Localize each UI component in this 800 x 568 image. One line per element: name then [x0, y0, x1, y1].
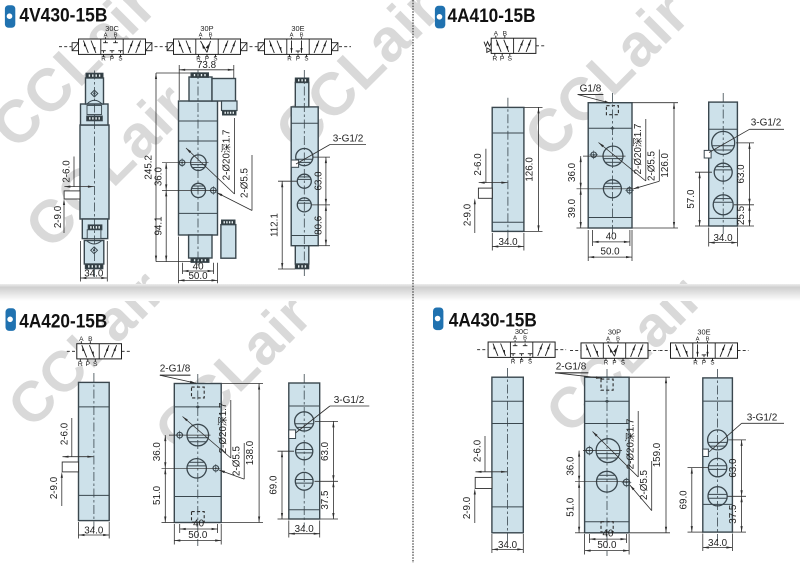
svg-text:80.6: 80.6 [313, 215, 324, 235]
svg-text:S: S [304, 56, 308, 63]
svg-text:2-G1/8: 2-G1/8 [556, 362, 587, 373]
svg-text:34.0: 34.0 [84, 269, 104, 280]
svg-text:34.0: 34.0 [713, 233, 733, 244]
svg-text:2-Ø5.5: 2-Ø5.5 [647, 150, 658, 181]
svg-text:126.0: 126.0 [660, 152, 671, 177]
svg-text:50.0: 50.0 [188, 530, 208, 541]
svg-text:34.0: 34.0 [295, 524, 315, 535]
svg-text:P: P [110, 56, 114, 63]
svg-text:3-G1/2: 3-G1/2 [333, 134, 364, 145]
svg-text:P: P [612, 359, 616, 366]
svg-text:36.0: 36.0 [567, 162, 578, 182]
svg-text:2-9.0: 2-9.0 [462, 203, 473, 226]
svg-text:2-G1/8: 2-G1/8 [160, 364, 191, 375]
svg-text:36.0: 36.0 [154, 167, 165, 187]
svg-text:R: R [287, 56, 292, 63]
svg-text:R: R [511, 359, 516, 366]
svg-text:34.0: 34.0 [498, 540, 518, 551]
svg-text:138.0: 138.0 [245, 440, 256, 465]
svg-text:2-6.0: 2-6.0 [62, 160, 73, 183]
svg-text:3-G1/2: 3-G1/2 [334, 395, 365, 406]
svg-text:39.0: 39.0 [567, 198, 578, 218]
svg-text:R: R [604, 359, 609, 366]
svg-text:2-Ø5.5: 2-Ø5.5 [240, 167, 251, 198]
svg-text:57.0: 57.0 [686, 189, 697, 209]
svg-text:2-9.0: 2-9.0 [49, 476, 60, 499]
svg-text:159.0: 159.0 [652, 442, 663, 467]
svg-text:63.0: 63.0 [313, 171, 324, 191]
svg-text:S: S [93, 361, 98, 368]
svg-text:P: P [296, 56, 300, 63]
svg-text:51.0: 51.0 [566, 497, 577, 517]
svg-text:2-Ø5.5: 2-Ø5.5 [639, 469, 650, 500]
svg-text:34.0: 34.0 [708, 538, 728, 549]
svg-text:4V430-15B: 4V430-15B [19, 5, 107, 27]
svg-text:3-G1/2: 3-G1/2 [747, 413, 778, 424]
svg-text:2-9.0: 2-9.0 [53, 205, 64, 228]
svg-text:2-9.0: 2-9.0 [462, 496, 473, 519]
svg-text:2-Ø20深1.7: 2-Ø20深1.7 [632, 124, 644, 175]
svg-text:3-G1/2: 3-G1/2 [751, 118, 782, 129]
svg-text:63.0: 63.0 [320, 441, 331, 461]
svg-text:36.0: 36.0 [566, 456, 577, 476]
svg-text:P: P [520, 359, 524, 366]
svg-text:36.0: 36.0 [152, 442, 163, 462]
svg-text:73.8: 73.8 [197, 60, 217, 71]
svg-text:S: S [508, 55, 513, 62]
svg-text:S: S [528, 359, 532, 366]
svg-text:63.0: 63.0 [736, 164, 747, 184]
svg-text:R: R [101, 56, 106, 63]
svg-text:2-Ø20深1.7: 2-Ø20深1.7 [624, 419, 636, 470]
svg-text:2-Ø20深1.7: 2-Ø20深1.7 [221, 130, 233, 181]
svg-text:4A420-15B: 4A420-15B [19, 311, 107, 333]
svg-text:37.5: 37.5 [320, 490, 331, 510]
svg-text:50.0: 50.0 [601, 247, 621, 258]
svg-text:40: 40 [606, 231, 617, 242]
svg-text:2-6.0: 2-6.0 [472, 439, 483, 462]
svg-text:34.0: 34.0 [84, 526, 104, 537]
svg-text:S: S [621, 359, 625, 366]
svg-text:94.1: 94.1 [154, 216, 165, 235]
svg-text:69.0: 69.0 [269, 475, 280, 495]
svg-text:126.0: 126.0 [525, 157, 536, 182]
svg-text:2-Ø20深1.7: 2-Ø20深1.7 [217, 403, 229, 454]
svg-text:2-6.0: 2-6.0 [59, 422, 70, 445]
svg-text:G1/8: G1/8 [580, 84, 602, 95]
svg-text:40: 40 [193, 519, 204, 530]
svg-text:40: 40 [603, 529, 614, 540]
svg-text:112.1: 112.1 [270, 213, 281, 237]
svg-text:4A410-15B: 4A410-15B [448, 5, 536, 27]
svg-text:63.0: 63.0 [728, 458, 739, 478]
svg-text:S: S [118, 56, 122, 63]
svg-text:S: S [710, 359, 714, 366]
svg-text:69.0: 69.0 [678, 490, 689, 510]
svg-text:25.5: 25.5 [736, 205, 747, 225]
svg-text:R: R [78, 361, 83, 368]
svg-text:50.0: 50.0 [188, 271, 208, 282]
svg-text:50.0: 50.0 [597, 540, 617, 551]
svg-text:P: P [86, 361, 91, 368]
svg-text:R: R [693, 359, 698, 366]
svg-text:2-Ø5.5: 2-Ø5.5 [232, 445, 243, 476]
svg-text:34.0: 34.0 [499, 237, 519, 248]
svg-text:R: R [492, 55, 497, 62]
svg-text:P: P [500, 55, 505, 62]
svg-text:P: P [702, 359, 706, 366]
svg-text:51.0: 51.0 [152, 485, 163, 505]
svg-text:2-6.0: 2-6.0 [473, 153, 484, 176]
svg-text:37.5: 37.5 [728, 504, 739, 524]
